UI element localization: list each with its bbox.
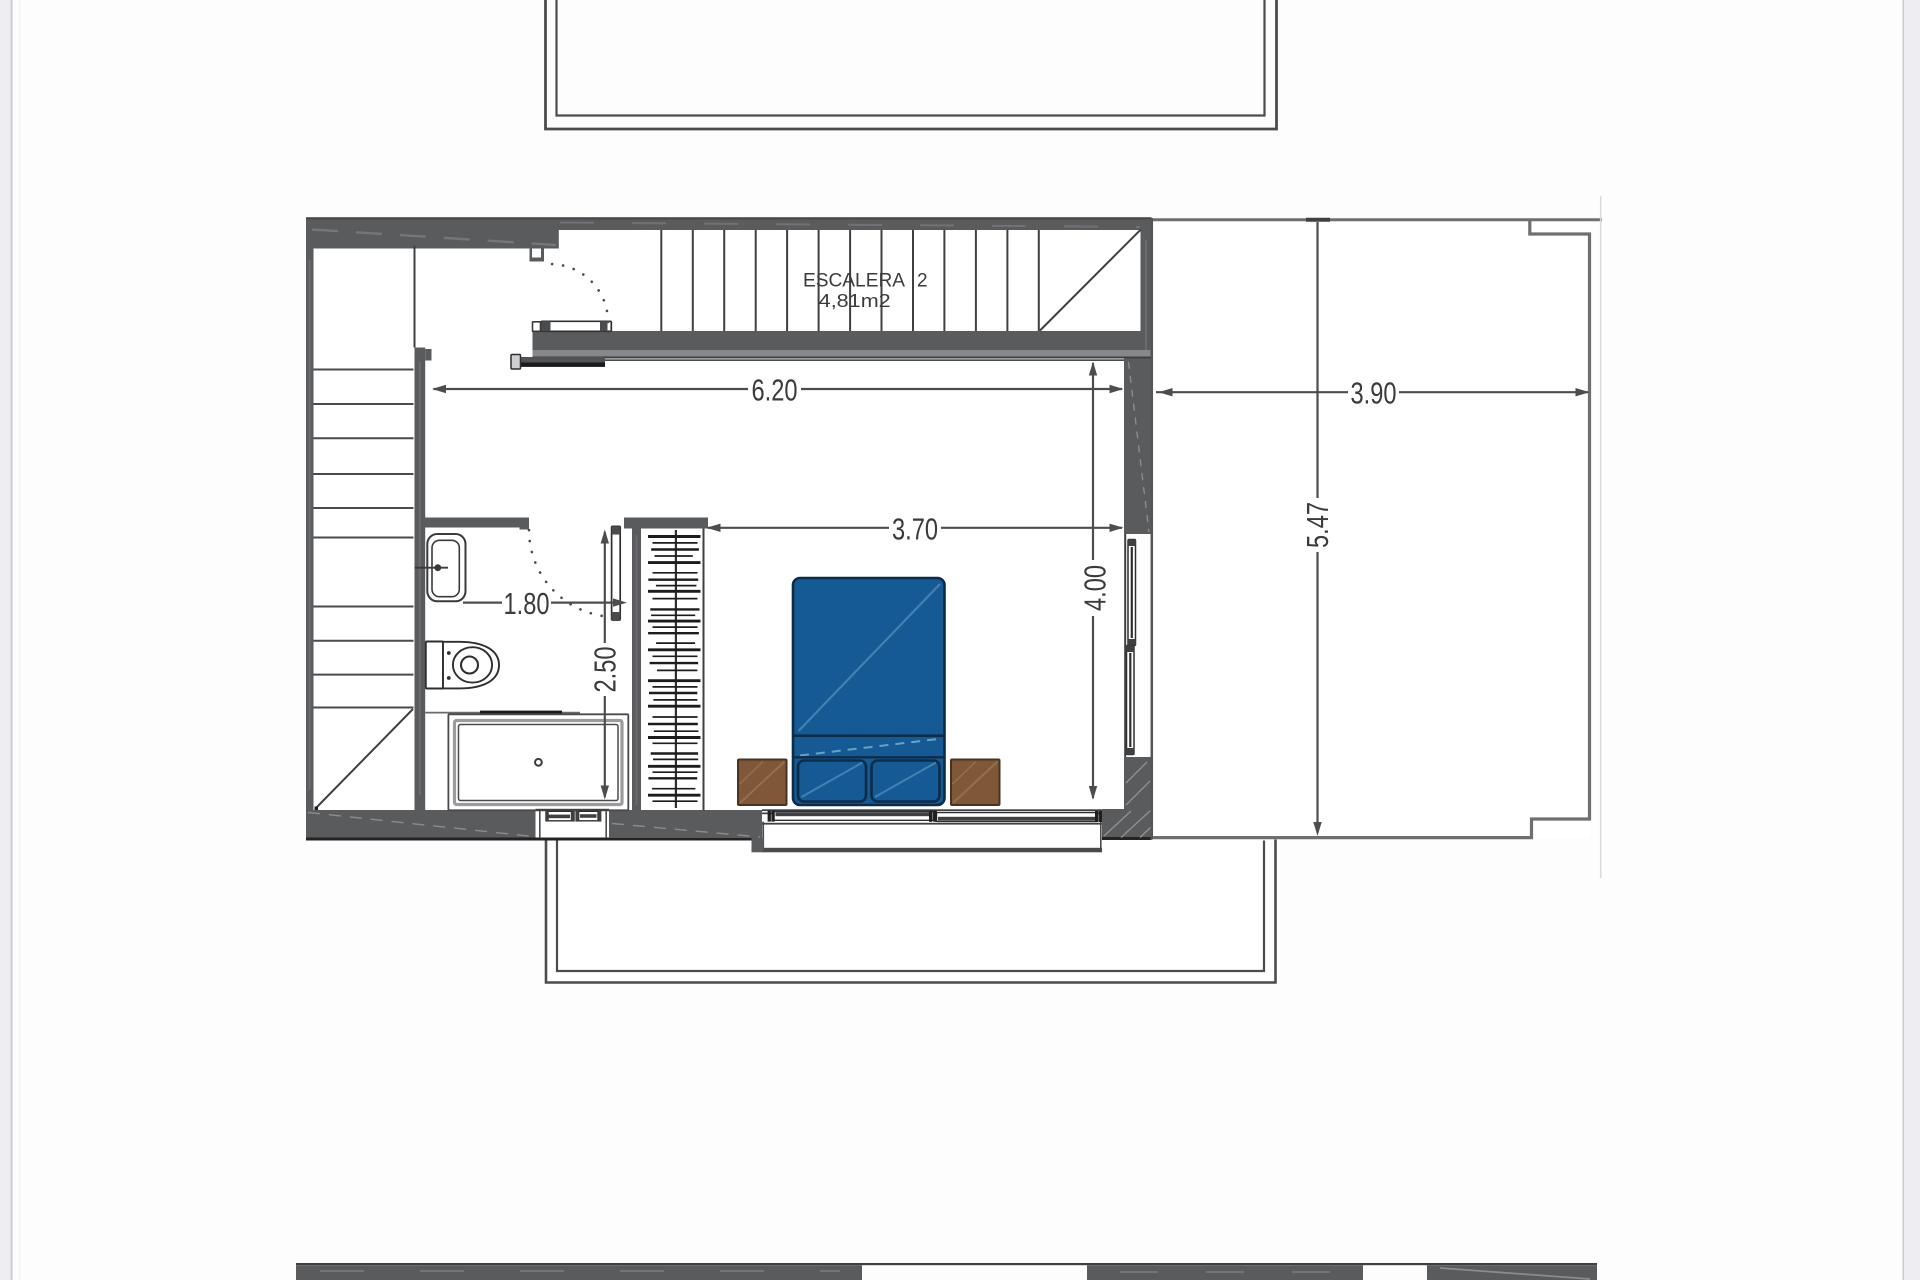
svg-text:3.90: 3.90: [1351, 376, 1397, 411]
svg-text:1.80: 1.80: [504, 586, 550, 621]
svg-text:3.70: 3.70: [892, 511, 938, 546]
svg-text:4.00: 4.00: [1078, 565, 1113, 611]
svg-text:ESCALERA: ESCALERA: [803, 271, 905, 292]
svg-text:4,81m2: 4,81m2: [819, 290, 891, 311]
svg-text:2.50: 2.50: [587, 647, 622, 693]
svg-text:2: 2: [917, 271, 928, 292]
svg-text:5.47: 5.47: [1300, 502, 1335, 548]
svg-text:6.20: 6.20: [752, 373, 798, 408]
